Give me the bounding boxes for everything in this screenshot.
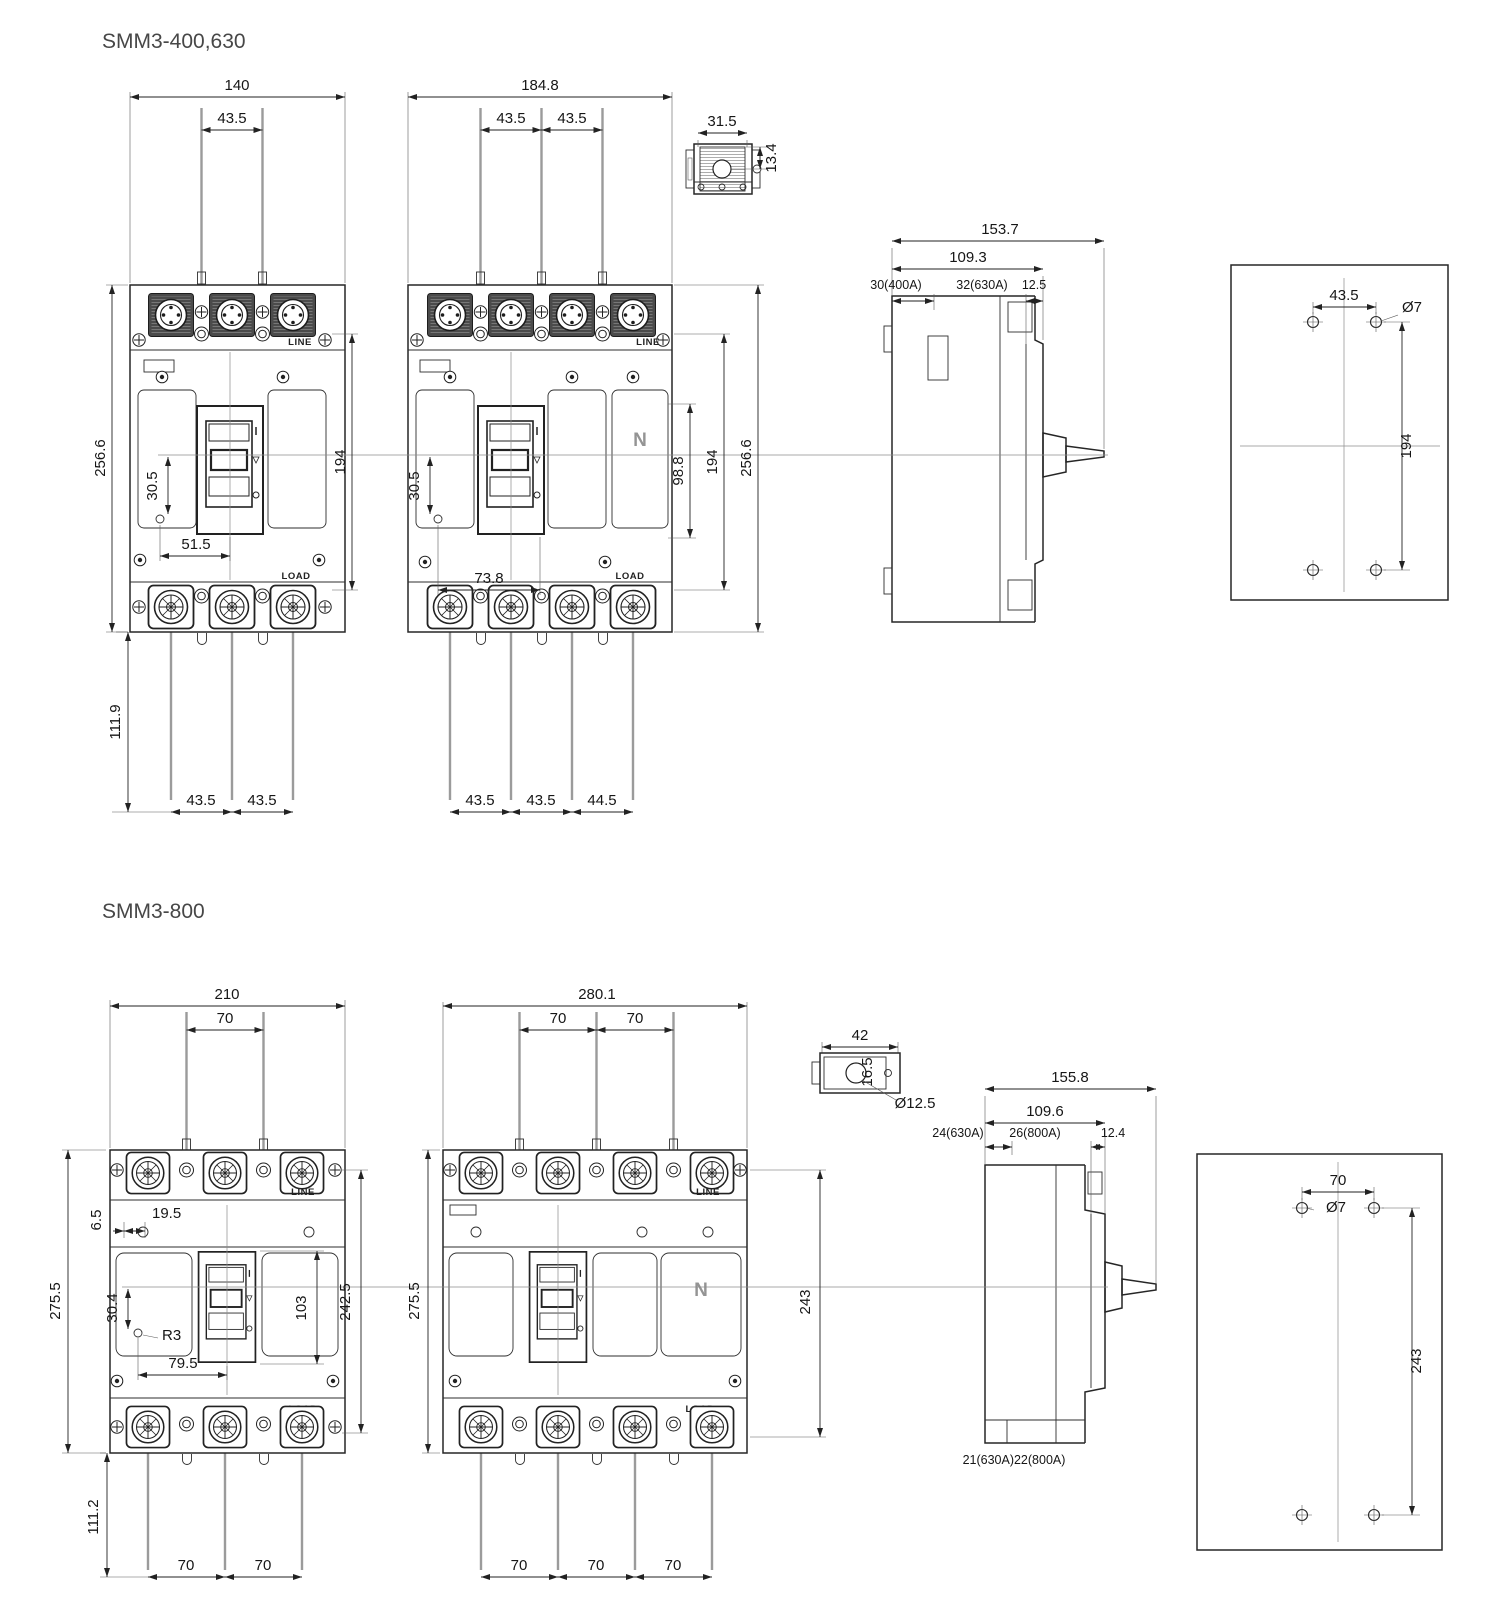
- dim-top-pitch: 70: [217, 1010, 234, 1027]
- mounting-hole-icon: [1366, 560, 1386, 580]
- dim-handle-630: 32(630A): [956, 278, 1007, 292]
- dim-plate-pitch-x: 43.5: [1329, 287, 1358, 304]
- clamp-screw-icon: [195, 327, 209, 341]
- load-label: LOAD: [616, 571, 645, 582]
- mounting-plate-800: 70 Ø7 243: [1197, 1154, 1442, 1550]
- dim-off-b: 19.5: [152, 1205, 181, 1222]
- clamp-screw-icon: [474, 589, 488, 603]
- screw-icon: [195, 306, 207, 318]
- dim-hole-dx: 73.8: [474, 570, 503, 587]
- dim-plate-pitch-x: 70: [1330, 1172, 1347, 1189]
- screw-icon: [277, 371, 289, 383]
- terminal-icon: [550, 294, 595, 337]
- dim-bot-pitch3: 44.5: [587, 792, 616, 809]
- mounting-plate: 43.5 Ø7 194: [1231, 265, 1448, 600]
- line-label: LINE: [288, 337, 312, 348]
- dim-mount-v: 242.5: [337, 1283, 354, 1321]
- screw-icon: [474, 306, 486, 318]
- dim-off-a: 6.5: [88, 1210, 105, 1231]
- dim-handle-400: 30(400A): [870, 278, 921, 292]
- dim-step: 12.5: [1022, 278, 1046, 292]
- dim-depth: 153.7: [981, 221, 1019, 238]
- clamp-screw-icon: [257, 1417, 271, 1431]
- screw-icon: [596, 306, 608, 318]
- section-smm3-800: SMM3-800 LINE R3 LOAD: [47, 900, 1442, 1577]
- terminal-icon: [280, 1406, 323, 1447]
- terminal-icon: [489, 294, 534, 337]
- terminal-icon: [536, 1406, 579, 1447]
- mounting-hole-icon: [1303, 560, 1323, 580]
- mounting-hole-icon: [1364, 1505, 1384, 1525]
- screw-icon: [444, 371, 456, 383]
- dim-step: 12.4: [1101, 1126, 1125, 1140]
- dims-front-4p-800: 280.1 70 70 275.5 243 70 70 70: [406, 986, 826, 1577]
- screw-icon: [156, 371, 168, 383]
- front-view-3p-800: LINE R3 LOAD: [110, 1012, 345, 1570]
- terminal-icon: [428, 294, 473, 337]
- screw-icon: [133, 334, 145, 346]
- clamp-screw-icon: [513, 1163, 527, 1177]
- dim-top-pitch2: 43.5: [557, 110, 586, 127]
- screw-icon: [535, 306, 547, 318]
- terminal-icon: [149, 294, 194, 337]
- terminal-icon: [611, 294, 656, 337]
- dim-plate-hole-dia: Ø7: [1326, 1199, 1346, 1216]
- screw-icon: [319, 601, 331, 613]
- terminal-icon: [210, 586, 255, 629]
- dim-width: 184.8: [521, 77, 559, 94]
- screw-icon: [111, 1375, 123, 1387]
- dim-width: 280.1: [578, 986, 616, 1003]
- dim-top-pitch1: 43.5: [496, 110, 525, 127]
- terminal-icon: [611, 586, 656, 629]
- terminal-icon: [613, 1152, 656, 1193]
- mounting-hole: [156, 515, 164, 523]
- dim-bot-pitch1: 70: [511, 1557, 528, 1574]
- neutral-pole-label: N: [633, 430, 647, 451]
- neutral-pole-label: N: [694, 1280, 708, 1301]
- terminal-icon: [126, 1152, 169, 1193]
- dim-handle-h: 103: [293, 1295, 310, 1320]
- dim-height: 275.5: [47, 1282, 64, 1320]
- lug-detail: 31.5 13.4: [686, 113, 780, 194]
- screw-icon: [444, 1164, 456, 1176]
- dim-bot-pitch1: 70: [178, 1557, 195, 1574]
- terminal-icon: [459, 1152, 502, 1193]
- dim-hole-dy: 30.5: [144, 471, 161, 500]
- dim-bot-pitch2: 70: [255, 1557, 272, 1574]
- dim-bot-pitch2: 43.5: [526, 792, 555, 809]
- screw-icon: [329, 1164, 341, 1176]
- clamp-screw-icon: [596, 327, 610, 341]
- screw-icon: [566, 371, 578, 383]
- dim-plate-pitch-y: 194: [1398, 433, 1415, 458]
- clamp-screw-icon: [535, 589, 549, 603]
- dim-height: 275.5: [406, 1282, 423, 1320]
- drawing-canvas: SMM3-400,630 LINE LOAD: [0, 0, 1500, 1620]
- dim-terminal-depth: 21(630A)22(800A): [963, 1453, 1066, 1467]
- dim-body-depth: 109.6: [1026, 1103, 1064, 1120]
- terminal-icon: [690, 1406, 733, 1447]
- terminal-icon: [613, 1406, 656, 1447]
- clamp-screw-icon: [590, 1163, 604, 1177]
- screw-icon: [111, 1164, 123, 1176]
- dim-height: 256.6: [738, 439, 755, 477]
- dim-handle-800: 26(800A): [1009, 1126, 1060, 1140]
- section-title: SMM3-800: [102, 900, 205, 923]
- dim-lug-width: 31.5: [707, 113, 736, 130]
- toggle-handle-side: [1122, 1279, 1156, 1295]
- screw-icon: [319, 334, 331, 346]
- toggle-handle-side: [1066, 446, 1104, 462]
- dim-hole-dx: 51.5: [181, 536, 210, 553]
- clamp-screw-icon: [535, 327, 549, 341]
- clamp-screw-icon: [667, 1417, 681, 1431]
- dim-mount-v: 243: [797, 1289, 814, 1314]
- dim-fillet: R3: [162, 1327, 181, 1344]
- screw-icon: [599, 556, 611, 568]
- mounting-hole-icon: [1364, 1198, 1384, 1218]
- load-label: LOAD: [282, 571, 311, 582]
- panel-hole: [138, 1227, 148, 1237]
- dim-bot-pitch2: 70: [588, 1557, 605, 1574]
- terminal-icon: [428, 586, 473, 629]
- line-label: LINE: [291, 1187, 315, 1198]
- side-view: 153.7 109.3 30(400A) 32(630A) 12.5: [870, 221, 1104, 622]
- clamp-screw-icon: [513, 1417, 527, 1431]
- dim-bot-pitch1: 43.5: [465, 792, 494, 809]
- dim-depth: 155.8: [1051, 1069, 1089, 1086]
- clamp-screw-icon: [474, 327, 488, 341]
- terminal-icon: [210, 294, 255, 337]
- dim-lead-length: 111.9: [107, 704, 124, 739]
- clamp-screw-icon: [590, 1417, 604, 1431]
- screw-icon: [327, 1375, 339, 1387]
- mounting-hole-icon: [1366, 312, 1386, 332]
- front-view-4p-800: LINE N LOAD: [443, 1012, 747, 1570]
- screw-icon: [111, 1421, 123, 1433]
- dim-bot-pitch1: 43.5: [186, 792, 215, 809]
- panel-hole: [304, 1227, 314, 1237]
- dim-top-pitch: 43.5: [217, 110, 246, 127]
- dim-bot-pitch3: 70: [665, 1557, 682, 1574]
- dim-handle-630: 24(630A): [932, 1126, 983, 1140]
- section-smm3-400-630: SMM3-400,630 LINE LOAD: [92, 30, 1448, 812]
- dimension-drawing-page: SMM3-400,630 LINE LOAD: [0, 0, 1500, 1620]
- screw-icon: [627, 371, 639, 383]
- clamp-screw-icon: [257, 1163, 271, 1177]
- mounting-hole-icon: [1292, 1198, 1312, 1218]
- dim-height: 256.6: [92, 439, 109, 477]
- dim-top-pitch2: 70: [627, 1010, 644, 1027]
- terminal-icon: [126, 1406, 169, 1447]
- clamp-screw-icon: [256, 327, 270, 341]
- mounting-hole-icon: [1303, 312, 1323, 332]
- front-view-4p: LINE N LOAD: [408, 108, 672, 800]
- terminal-icon: [489, 586, 534, 629]
- clamp-screw-icon: [256, 589, 270, 603]
- terminal-icon: [550, 586, 595, 629]
- screw-icon: [419, 556, 431, 568]
- clamp-screw-icon: [180, 1163, 194, 1177]
- dim-hole-dy: 30.4: [104, 1293, 121, 1322]
- dim-bot-pitch2: 43.5: [247, 792, 276, 809]
- dim-lug-hole: Ø12.5: [895, 1095, 936, 1112]
- dim-hole-dx: 79.5: [168, 1355, 197, 1372]
- dim-mount-v: 194: [704, 449, 721, 474]
- screw-icon: [134, 554, 146, 566]
- screw-icon: [256, 306, 268, 318]
- screw-icon: [734, 1164, 746, 1176]
- terminal-icon: [203, 1152, 246, 1193]
- mounting-hole-icon: [1292, 1505, 1312, 1525]
- dim-n-span: 98.8: [670, 456, 687, 485]
- screw-icon: [449, 1375, 461, 1387]
- terminal-icon: [536, 1152, 579, 1193]
- mounting-hole: [134, 1329, 142, 1337]
- dim-lead-length: 111.2: [85, 1499, 102, 1534]
- terminal-icon: [459, 1406, 502, 1447]
- dim-mount-v: 194: [332, 449, 349, 474]
- section-title: SMM3-400,630: [102, 30, 246, 53]
- dim-lug-height: 16.5: [859, 1057, 876, 1086]
- terminal-icon: [149, 586, 194, 629]
- dim-plate-pitch-y: 243: [1408, 1348, 1425, 1373]
- dim-plate-hole-dia: Ø7: [1402, 299, 1422, 316]
- dim-lug-height: 13.4: [763, 143, 780, 172]
- clamp-screw-icon: [596, 589, 610, 603]
- lug-detail-800: 42 16.5 Ø12.5: [812, 1027, 935, 1112]
- side-view-800: 155.8 109.6 24(630A) 26(800A) 12.4 21(63…: [932, 1069, 1156, 1467]
- dim-body-depth: 109.3: [949, 249, 987, 266]
- screw-icon: [329, 1421, 341, 1433]
- line-label: LINE: [636, 337, 660, 348]
- lug-hole: [713, 160, 731, 178]
- screw-icon: [411, 334, 423, 346]
- dim-top-pitch1: 70: [550, 1010, 567, 1027]
- dim-width: 140: [224, 77, 249, 94]
- front-view-3p: LINE LOAD: [130, 108, 345, 800]
- dim-hole-dy: 30.5: [406, 471, 423, 500]
- clamp-screw-icon: [180, 1417, 194, 1431]
- clamp-screw-icon: [667, 1163, 681, 1177]
- screw-icon: [313, 554, 325, 566]
- terminal-icon: [271, 586, 316, 629]
- line-label: LINE: [696, 1187, 720, 1198]
- screw-icon: [133, 601, 145, 613]
- dim-width: 210: [214, 986, 239, 1003]
- clamp-screw-icon: [195, 589, 209, 603]
- dim-lug-width: 42: [852, 1027, 869, 1044]
- screw-icon: [729, 1375, 741, 1387]
- mounting-hole: [434, 515, 442, 523]
- terminal-icon: [203, 1406, 246, 1447]
- terminal-icon: [271, 294, 316, 337]
